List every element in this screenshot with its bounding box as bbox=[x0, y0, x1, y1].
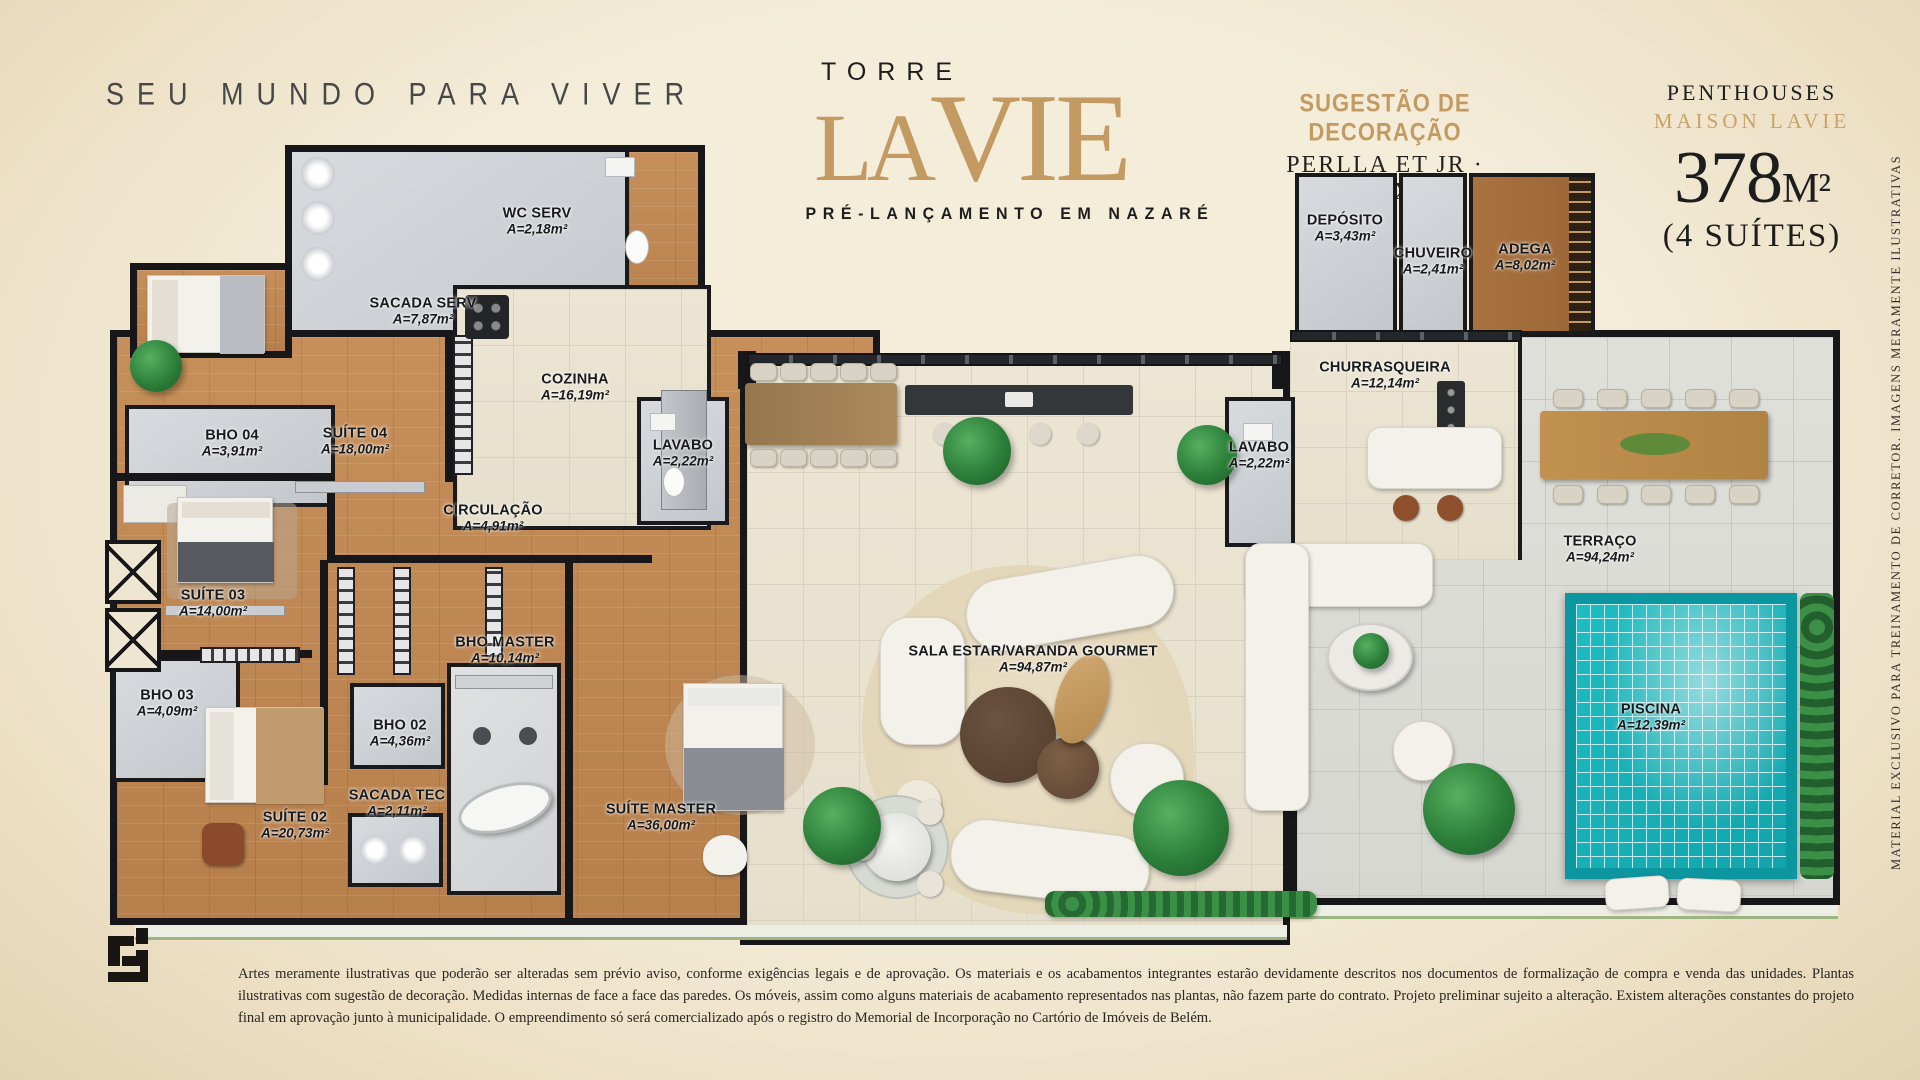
side-note: MATERIAL EXCLUSIVO PARA TREINAMENTO DE C… bbox=[1889, 370, 1904, 870]
room-area: A=3,43m² bbox=[1307, 229, 1383, 244]
dining-chair bbox=[840, 449, 867, 467]
sink bbox=[605, 157, 635, 177]
toilet bbox=[663, 467, 685, 497]
hedge bbox=[1045, 891, 1317, 917]
room-name: DEPÓSITO bbox=[1307, 213, 1383, 229]
room-name: SUÍTE MASTER bbox=[606, 802, 716, 818]
sink-basin bbox=[398, 835, 428, 865]
washer bbox=[301, 247, 335, 281]
double-vanity bbox=[455, 675, 553, 689]
bbq-counter bbox=[1367, 427, 1502, 489]
room-label-wc-serv: WC SERVA=2,18m² bbox=[503, 206, 572, 237]
poster-canvas: { "header": { "tagline": "SEU MUNDO PARA… bbox=[0, 0, 1920, 1080]
wardrobe bbox=[393, 567, 411, 675]
blanket bbox=[178, 542, 274, 582]
armchair bbox=[202, 823, 244, 865]
room-area: A=7,87m² bbox=[370, 312, 477, 327]
room-label-adega: ADEGAA=8,02m² bbox=[1495, 242, 1555, 273]
bed-suite-master bbox=[683, 683, 783, 811]
storage-room bbox=[1295, 173, 1397, 335]
room-area: A=12,14m² bbox=[1319, 376, 1451, 391]
bar-stool bbox=[1077, 423, 1099, 445]
room-label-circulacao: CIRCULAÇÃOA=4,91m² bbox=[443, 503, 542, 534]
room-label-terraco: TERRAÇOA=94,24m² bbox=[1563, 534, 1636, 565]
elevator-shaft bbox=[105, 608, 161, 672]
wall bbox=[110, 473, 328, 481]
room-name: WC SERV bbox=[503, 206, 572, 222]
room-label-suite-master: SUÍTE MASTERA=36,00m² bbox=[606, 802, 716, 833]
wall bbox=[565, 560, 573, 925]
room-area: A=3,91m² bbox=[202, 444, 262, 459]
room-area: A=4,36m² bbox=[370, 734, 430, 749]
lounge-chair bbox=[703, 835, 747, 875]
room-area: A=4,09m² bbox=[137, 704, 197, 719]
room-name: LAVABO bbox=[1229, 440, 1289, 456]
room-label-suite-02: SUÍTE 02A=20,73m² bbox=[261, 810, 329, 841]
room-label-lavabo-esq: LAVABOA=2,22m² bbox=[653, 438, 713, 469]
plant bbox=[1423, 763, 1515, 855]
chaise bbox=[880, 617, 965, 745]
room-area: A=4,91m² bbox=[443, 519, 542, 534]
balcony-edge bbox=[135, 925, 1287, 940]
wall bbox=[330, 555, 652, 563]
room-name: SALA ESTAR/VARANDA GOURMET bbox=[908, 644, 1157, 660]
washer bbox=[301, 201, 335, 235]
bath-master-room bbox=[447, 663, 561, 895]
room-area: A=2,22m² bbox=[653, 454, 713, 469]
counter-stool bbox=[1437, 495, 1463, 521]
pool-lounger bbox=[1604, 875, 1670, 911]
dining-chair bbox=[810, 449, 837, 467]
room-label-sala-estar: SALA ESTAR/VARANDA GOURMETA=94,87m² bbox=[908, 644, 1157, 675]
room-name: SUÍTE 04 bbox=[321, 426, 389, 442]
blanket bbox=[220, 276, 264, 354]
terrace-chair bbox=[1641, 389, 1671, 408]
elevator-shaft bbox=[105, 540, 161, 604]
plant bbox=[1133, 780, 1229, 876]
room-area: A=10,14m² bbox=[455, 651, 554, 666]
room-area: A=18,00m² bbox=[321, 442, 389, 457]
pillows bbox=[688, 688, 780, 706]
room-name: ADEGA bbox=[1495, 242, 1555, 258]
bed-suite-03 bbox=[177, 497, 273, 583]
room-name: CHUVEIRO bbox=[1394, 246, 1472, 262]
room-name: LAVABO bbox=[653, 438, 713, 454]
room-label-bho-03: BHO 03A=4,09m² bbox=[137, 688, 197, 719]
terrace-edge bbox=[1290, 905, 1838, 919]
room-label-lavabo-dir: LAVABOA=2,22m² bbox=[1229, 440, 1289, 471]
room-area: A=20,73m² bbox=[261, 826, 329, 841]
shower-head bbox=[519, 727, 537, 745]
terrace-table bbox=[1540, 411, 1768, 479]
room-label-sacada-serv: SACADA SERVA=7,87m² bbox=[370, 296, 477, 327]
room-name: SACADA SERV bbox=[370, 296, 477, 312]
room-label-cozinha: COZINHAA=16,19m² bbox=[541, 372, 609, 403]
powder-room-right bbox=[1225, 397, 1295, 547]
media-console bbox=[295, 481, 425, 493]
dining-chair bbox=[750, 363, 777, 381]
room-name: SACADA TEC bbox=[349, 788, 446, 804]
island-sink bbox=[1005, 392, 1033, 407]
terrace-chair bbox=[1729, 389, 1759, 408]
plant bbox=[130, 340, 182, 392]
unit-type: PENTHOUSES bbox=[1612, 80, 1892, 106]
terrace-chair bbox=[1641, 485, 1671, 504]
room-label-churrasqueira: CHURRASQUEIRAA=12,14m² bbox=[1319, 360, 1451, 391]
terrace-chair bbox=[1553, 485, 1583, 504]
terrace-sofa bbox=[1245, 543, 1309, 811]
coffee-table bbox=[1037, 737, 1099, 799]
dining-chair bbox=[870, 363, 897, 381]
room-name: CHURRASQUEIRA bbox=[1319, 360, 1451, 376]
terrace-chair bbox=[1685, 389, 1715, 408]
pillows bbox=[210, 712, 234, 800]
room-area: A=14,00m² bbox=[179, 604, 247, 619]
counter-stool bbox=[1393, 495, 1419, 521]
terrace-chair bbox=[1553, 389, 1583, 408]
bbq-back-wall bbox=[1290, 330, 1522, 342]
legal-disclaimer: Artes meramente ilustrativas que poderão… bbox=[238, 964, 1854, 1030]
terrace-chair bbox=[1597, 485, 1627, 504]
pool-lounger bbox=[1676, 877, 1742, 912]
shower-head bbox=[473, 727, 491, 745]
pool bbox=[1565, 593, 1797, 879]
sink-basin bbox=[360, 835, 390, 865]
tagline: SEU MUNDO PARA VIVER bbox=[106, 76, 697, 113]
dining-chair bbox=[780, 449, 807, 467]
room-label-suite-03: SUÍTE 03A=14,00m² bbox=[179, 588, 247, 619]
room-label-chuveiro: CHUVEIROA=2,41m² bbox=[1394, 246, 1472, 277]
dining-chair bbox=[840, 363, 867, 381]
room-area: A=36,00m² bbox=[606, 818, 716, 833]
floor-plan: WC SERVA=2,18m² SACADA SERVA=7,87m² COZI… bbox=[105, 135, 1855, 947]
chair-round bbox=[917, 871, 943, 897]
room-name: SUÍTE 03 bbox=[179, 588, 247, 604]
terrace-chair bbox=[1597, 389, 1627, 408]
room-label-bho-02: BHO 02A=4,36m² bbox=[370, 718, 430, 749]
dining-table bbox=[745, 383, 897, 445]
pillows bbox=[182, 502, 270, 518]
dining-chair bbox=[780, 363, 807, 381]
room-area: A=12,39m² bbox=[1617, 718, 1685, 733]
room-area: A=94,87m² bbox=[908, 660, 1157, 675]
plant bbox=[803, 787, 881, 865]
room-area: A=2,18m² bbox=[503, 222, 572, 237]
developer-logo-mark bbox=[106, 926, 152, 982]
wine-rack bbox=[1569, 177, 1591, 331]
room-area: A=2,11m² bbox=[349, 804, 446, 819]
room-label-deposito: DEPÓSITOA=3,43m² bbox=[1307, 213, 1383, 244]
sink bbox=[650, 413, 676, 431]
bed-suite-02 bbox=[205, 707, 323, 803]
table-runner bbox=[1620, 433, 1690, 455]
room-area: A=2,41m² bbox=[1394, 262, 1472, 277]
chair-round bbox=[917, 799, 943, 825]
wardrobe bbox=[200, 647, 300, 663]
room-area: A=2,22m² bbox=[1229, 456, 1289, 471]
blanket bbox=[256, 708, 324, 804]
room-name: PISCINA bbox=[1617, 702, 1685, 718]
kitchen-island bbox=[905, 385, 1133, 415]
room-area: A=8,02m² bbox=[1495, 258, 1555, 273]
room-name: BHO 02 bbox=[370, 718, 430, 734]
dining-chair bbox=[810, 363, 837, 381]
dining-chair bbox=[870, 449, 897, 467]
room-name: TERRAÇO bbox=[1563, 534, 1636, 550]
room-name: BHO MASTER bbox=[455, 635, 554, 651]
toilet bbox=[625, 230, 649, 264]
room-label-sacada-tec: SACADA TECA=2,11m² bbox=[349, 788, 446, 819]
room-name: COZINHA bbox=[541, 372, 609, 388]
wardrobe bbox=[453, 335, 473, 475]
dining-chair bbox=[750, 449, 777, 467]
room-label-bho-04: BHO 04A=3,91m² bbox=[202, 428, 262, 459]
bar-stool bbox=[1029, 423, 1051, 445]
room-area: A=16,19m² bbox=[541, 388, 609, 403]
unit-brand: MAISON LAVIE bbox=[1612, 109, 1892, 134]
room-name: SUÍTE 02 bbox=[261, 810, 329, 826]
room-name: CIRCULAÇÃO bbox=[443, 503, 542, 519]
wall bbox=[445, 330, 453, 482]
room-name: BHO 03 bbox=[137, 688, 197, 704]
room-label-suite-04: SUÍTE 04A=18,00m² bbox=[321, 426, 389, 457]
washer bbox=[301, 157, 335, 191]
room-label-piscina: PISCINAA=12,39m² bbox=[1617, 702, 1685, 733]
room-label-bho-master: BHO MASTERA=10,14m² bbox=[455, 635, 554, 666]
sink bbox=[1243, 423, 1273, 441]
terrace-chair bbox=[1685, 485, 1715, 504]
wardrobe bbox=[337, 567, 355, 675]
plant bbox=[943, 417, 1011, 485]
room-name: BHO 04 bbox=[202, 428, 262, 444]
terrace-chair bbox=[1729, 485, 1759, 504]
developer-logo bbox=[106, 926, 152, 982]
pool-planter bbox=[1800, 593, 1834, 879]
room-area: A=94,24m² bbox=[1563, 550, 1636, 565]
plant bbox=[1353, 633, 1389, 669]
